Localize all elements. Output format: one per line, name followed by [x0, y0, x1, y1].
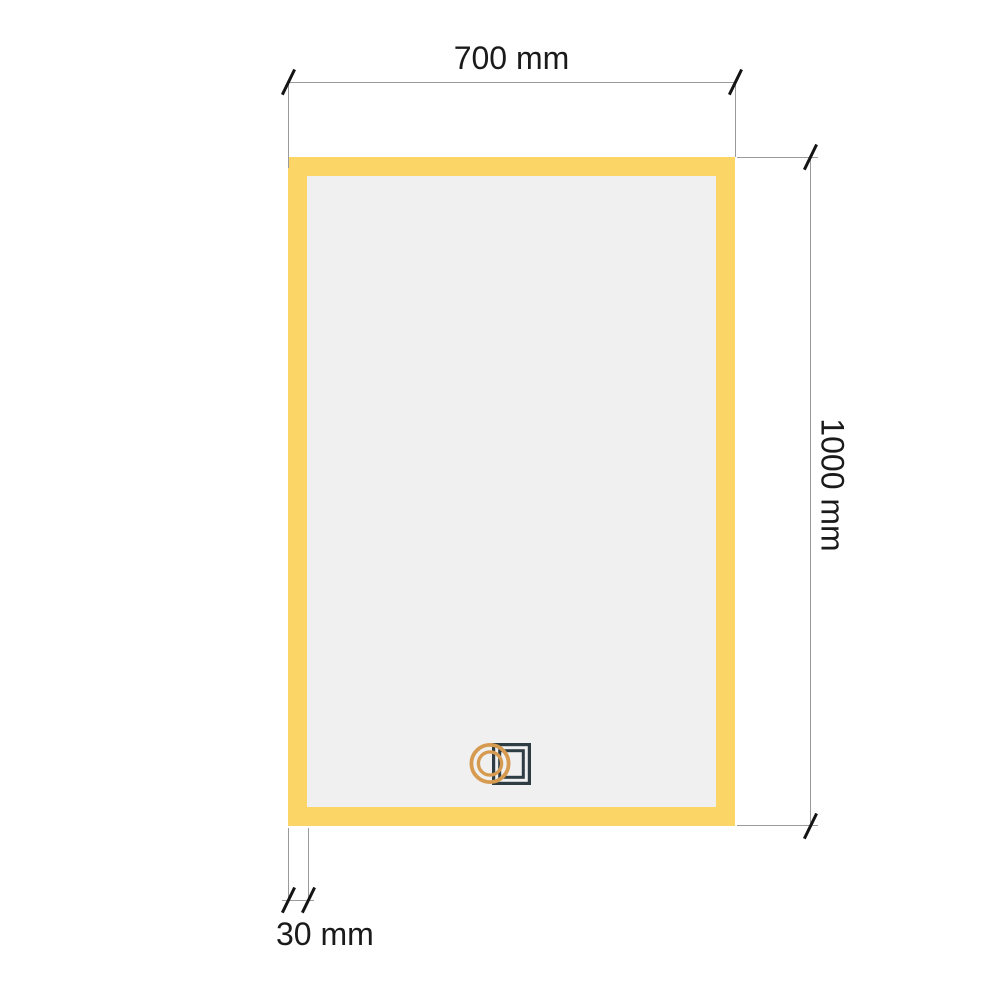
height-dimension-label: 1000 mm [815, 418, 851, 551]
width-dimension-label: 700 mm [288, 40, 735, 76]
height-dimension-label-box: 1000 mm [812, 157, 854, 812]
height-dimension-line [810, 157, 811, 826]
frame-extension-line-inner [308, 828, 309, 900]
width-extension-line-left [288, 82, 289, 168]
width-dimension-line [288, 82, 735, 83]
mirror-glass-surface [307, 176, 716, 807]
width-extension-line-right [735, 82, 736, 157]
frame-extension-line-outer [288, 828, 289, 900]
touch-icon-ring-inner [478, 752, 501, 775]
touch-sensor-icon [452, 731, 548, 801]
height-extension-line-bottom [737, 825, 818, 826]
height-extension-line-top [737, 157, 818, 158]
frame-dimension-label: 30 mm [276, 916, 374, 952]
mirror-dimension-diagram: 700 mm 1000 mm 30 mm [0, 0, 1000, 1000]
